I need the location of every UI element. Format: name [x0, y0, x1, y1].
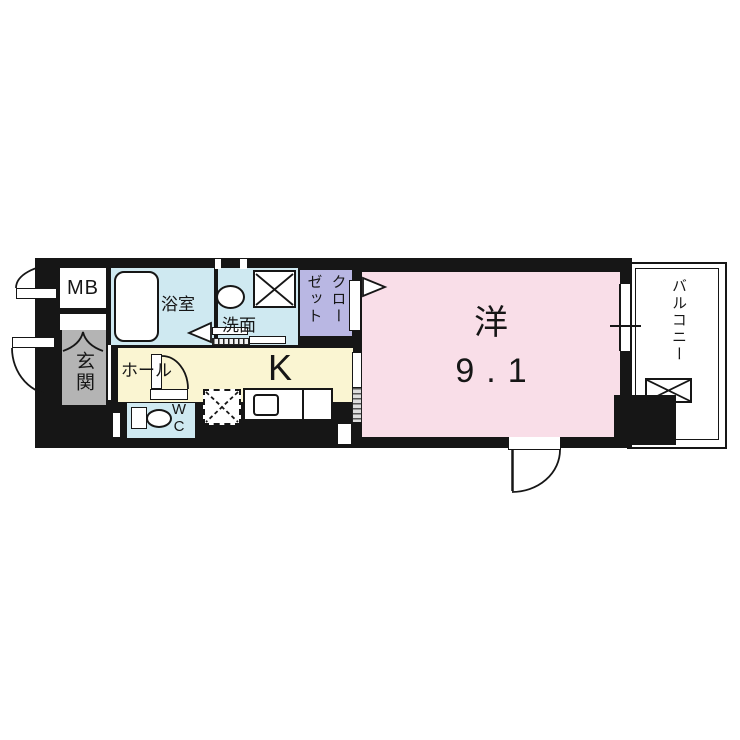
wc-label: W C	[168, 401, 190, 438]
entrance-door-leaf	[12, 337, 55, 348]
genkan-label: 玄関	[73, 351, 97, 405]
washer-area	[253, 270, 296, 308]
window	[619, 284, 632, 351]
counter-base-line	[243, 426, 333, 429]
bottom-door-opening	[508, 437, 561, 450]
fridge-area	[203, 389, 241, 425]
sink-icon	[216, 285, 245, 309]
bottom-door-arc	[512, 450, 560, 492]
room-sliding-door-upper	[352, 352, 362, 388]
toilet-tank-icon	[131, 407, 147, 429]
wall-slit-left-of-wc	[113, 413, 120, 437]
wc-label-c: C	[168, 418, 190, 435]
closet-label: ゼット クロー	[302, 274, 350, 334]
closet-label-col1: クロー	[328, 274, 349, 334]
bathroom-label: 浴室	[161, 290, 195, 315]
bathtub-icon	[114, 271, 159, 342]
floorplan: MB 玄関 浴室 洗面 ゼット クロー ホール K W C 洋 9.1 バルコニ…	[0, 0, 740, 740]
mb-door-leaf	[16, 288, 57, 299]
wc-door-opening	[150, 389, 188, 400]
closet-label-col2: ゼット	[304, 274, 325, 334]
meter-box: MB	[60, 268, 106, 308]
balcony-label: バルコニー	[667, 278, 689, 378]
meter-box-label: MB	[67, 277, 99, 300]
kitchen-counter	[243, 388, 333, 421]
western-room-size: 9.1	[362, 352, 620, 391]
washroom-label: 洗面	[222, 311, 256, 336]
wall-slit-right-of-counter	[338, 424, 351, 444]
entry-alcove	[60, 314, 106, 330]
top-wall-slit-b	[240, 259, 247, 269]
closet-door	[349, 280, 361, 331]
counter-divider	[302, 390, 304, 419]
kitchen-label: K	[240, 348, 320, 388]
room-sliding-door-lower	[352, 388, 362, 422]
wc-label-w: W	[168, 401, 190, 418]
sliding-door-panel	[249, 336, 286, 344]
kitchen-sink-icon	[253, 394, 279, 416]
hall-label: ホール	[121, 356, 172, 381]
genkan-wall-slit	[108, 345, 111, 400]
wall-block-bottom-right	[614, 395, 676, 445]
western-room-label: 洋	[362, 295, 620, 344]
top-wall-slit-a	[215, 259, 221, 269]
sliding-door-rail	[212, 338, 250, 345]
